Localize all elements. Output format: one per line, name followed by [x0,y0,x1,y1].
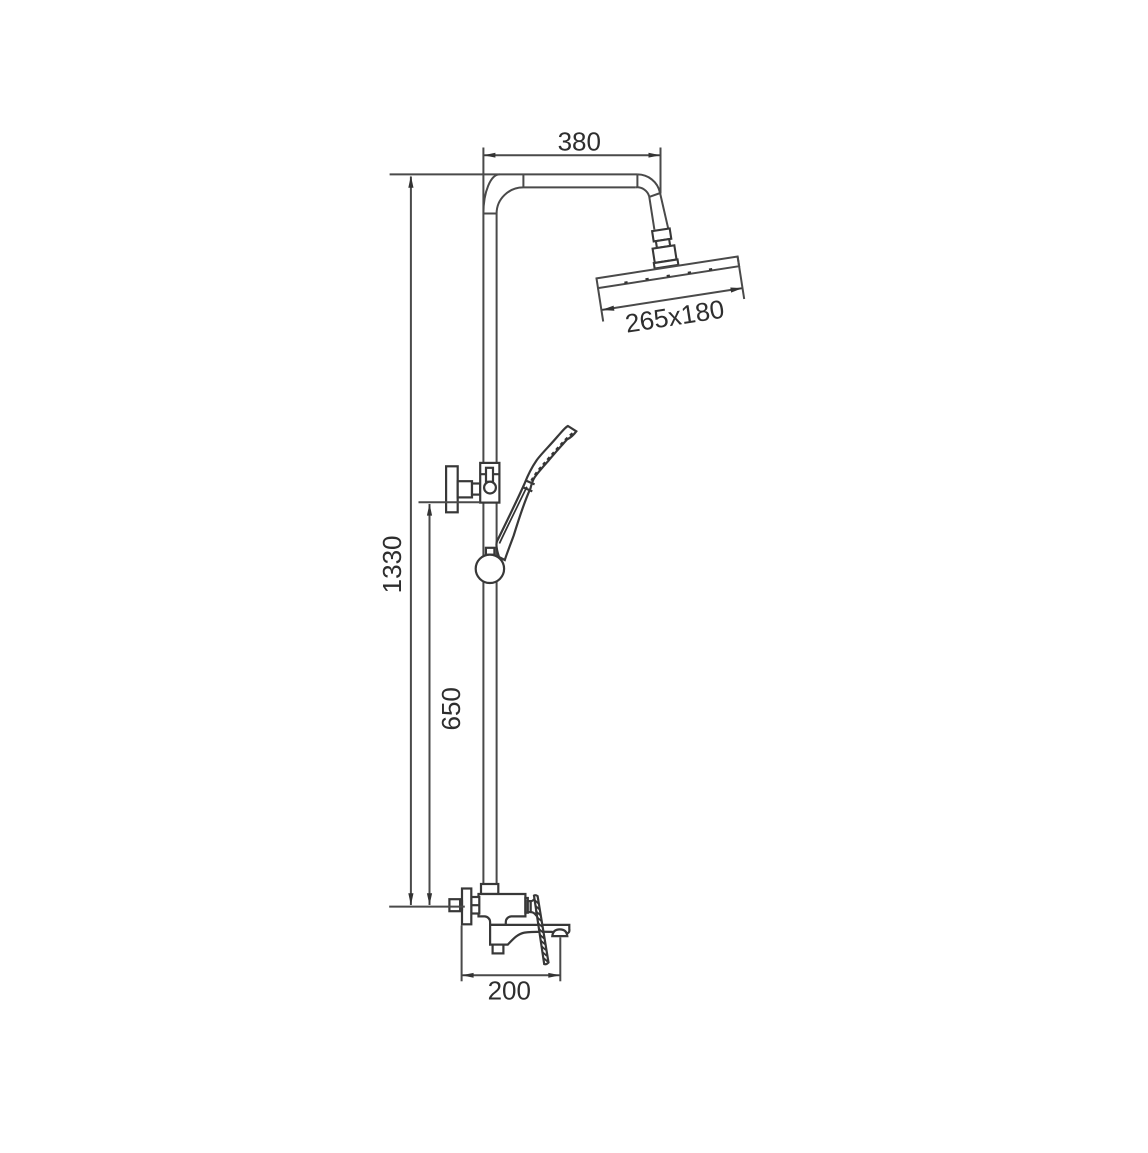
svg-text:650: 650 [436,687,466,730]
svg-text:380: 380 [558,127,601,157]
svg-text:1330: 1330 [377,535,407,593]
svg-text:200: 200 [488,976,531,1006]
